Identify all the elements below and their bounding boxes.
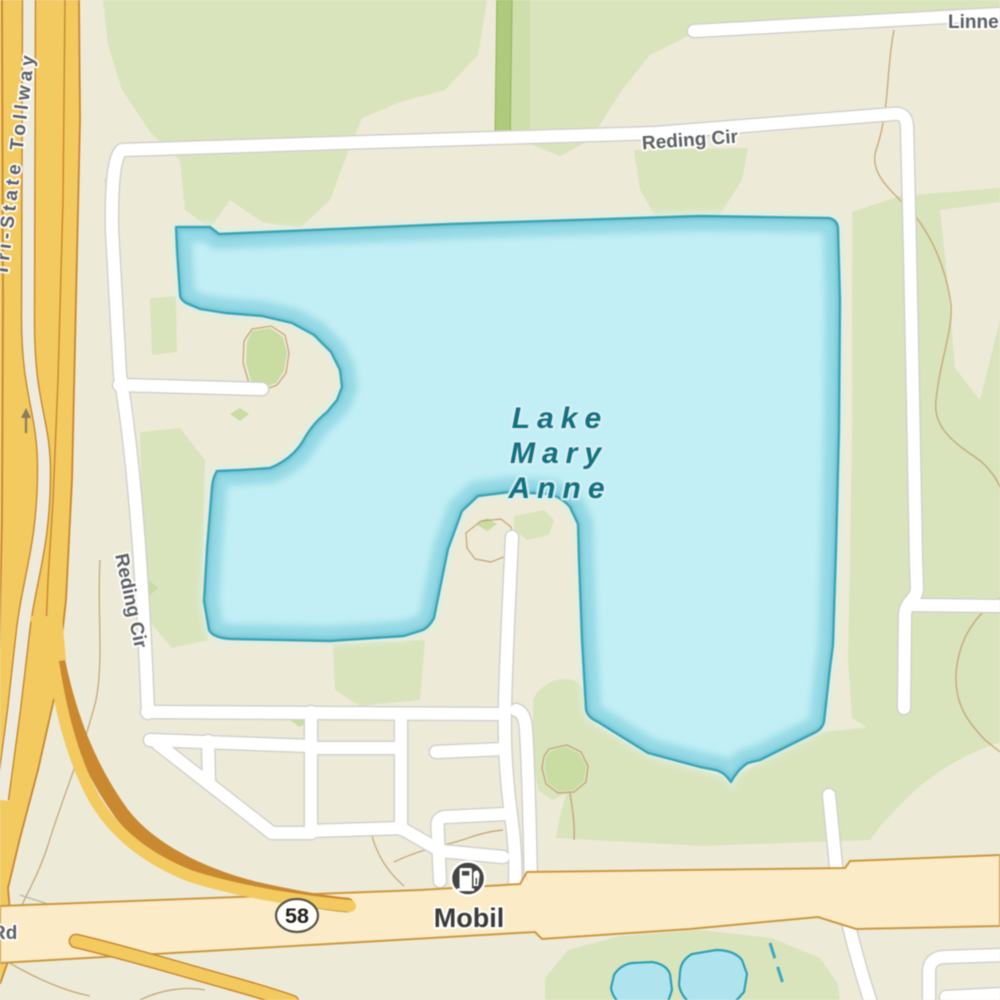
svg-text:Mary: Mary bbox=[510, 437, 608, 470]
svg-text:Anne: Anne bbox=[508, 472, 612, 505]
svg-text:Mobil: Mobil bbox=[434, 903, 504, 933]
svg-text:Rd: Rd bbox=[0, 923, 17, 944]
svg-text:Lake: Lake bbox=[512, 402, 608, 435]
svg-text:Linnem: Linnem bbox=[948, 12, 1000, 33]
svg-text:58: 58 bbox=[285, 904, 309, 928]
